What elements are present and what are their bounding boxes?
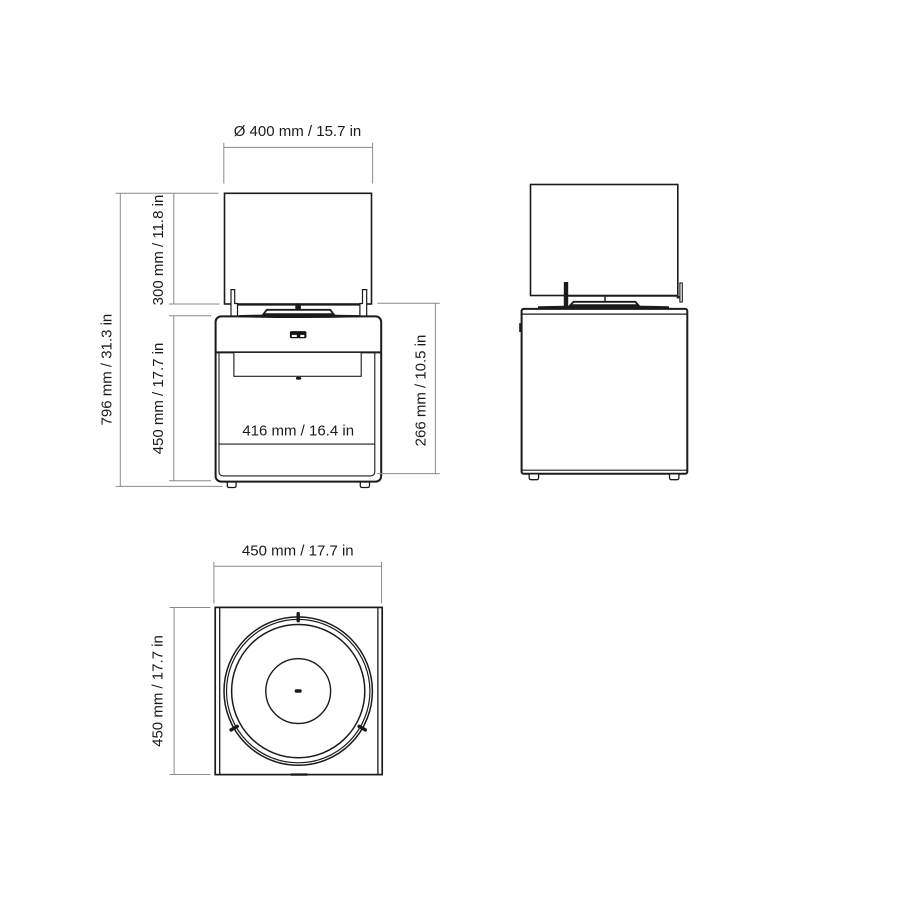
svg-text:300 mm / 11.8 in: 300 mm / 11.8 in [150,195,167,306]
svg-text:450 mm / 17.7 in: 450 mm / 17.7 in [242,542,354,559]
svg-text:266 mm / 10.5 in: 266 mm / 10.5 in [412,335,429,447]
svg-text:450 mm / 17.7 in: 450 mm / 17.7 in [150,343,167,455]
svg-text:Ø 400 mm / 15.7 in: Ø 400 mm / 15.7 in [234,123,362,140]
svg-text:416 mm / 16.4 in: 416 mm / 16.4 in [242,423,354,440]
svg-text:796 mm / 31.3 in: 796 mm / 31.3 in [99,314,116,426]
svg-text:450 mm / 17.7 in: 450 mm / 17.7 in [150,635,167,747]
